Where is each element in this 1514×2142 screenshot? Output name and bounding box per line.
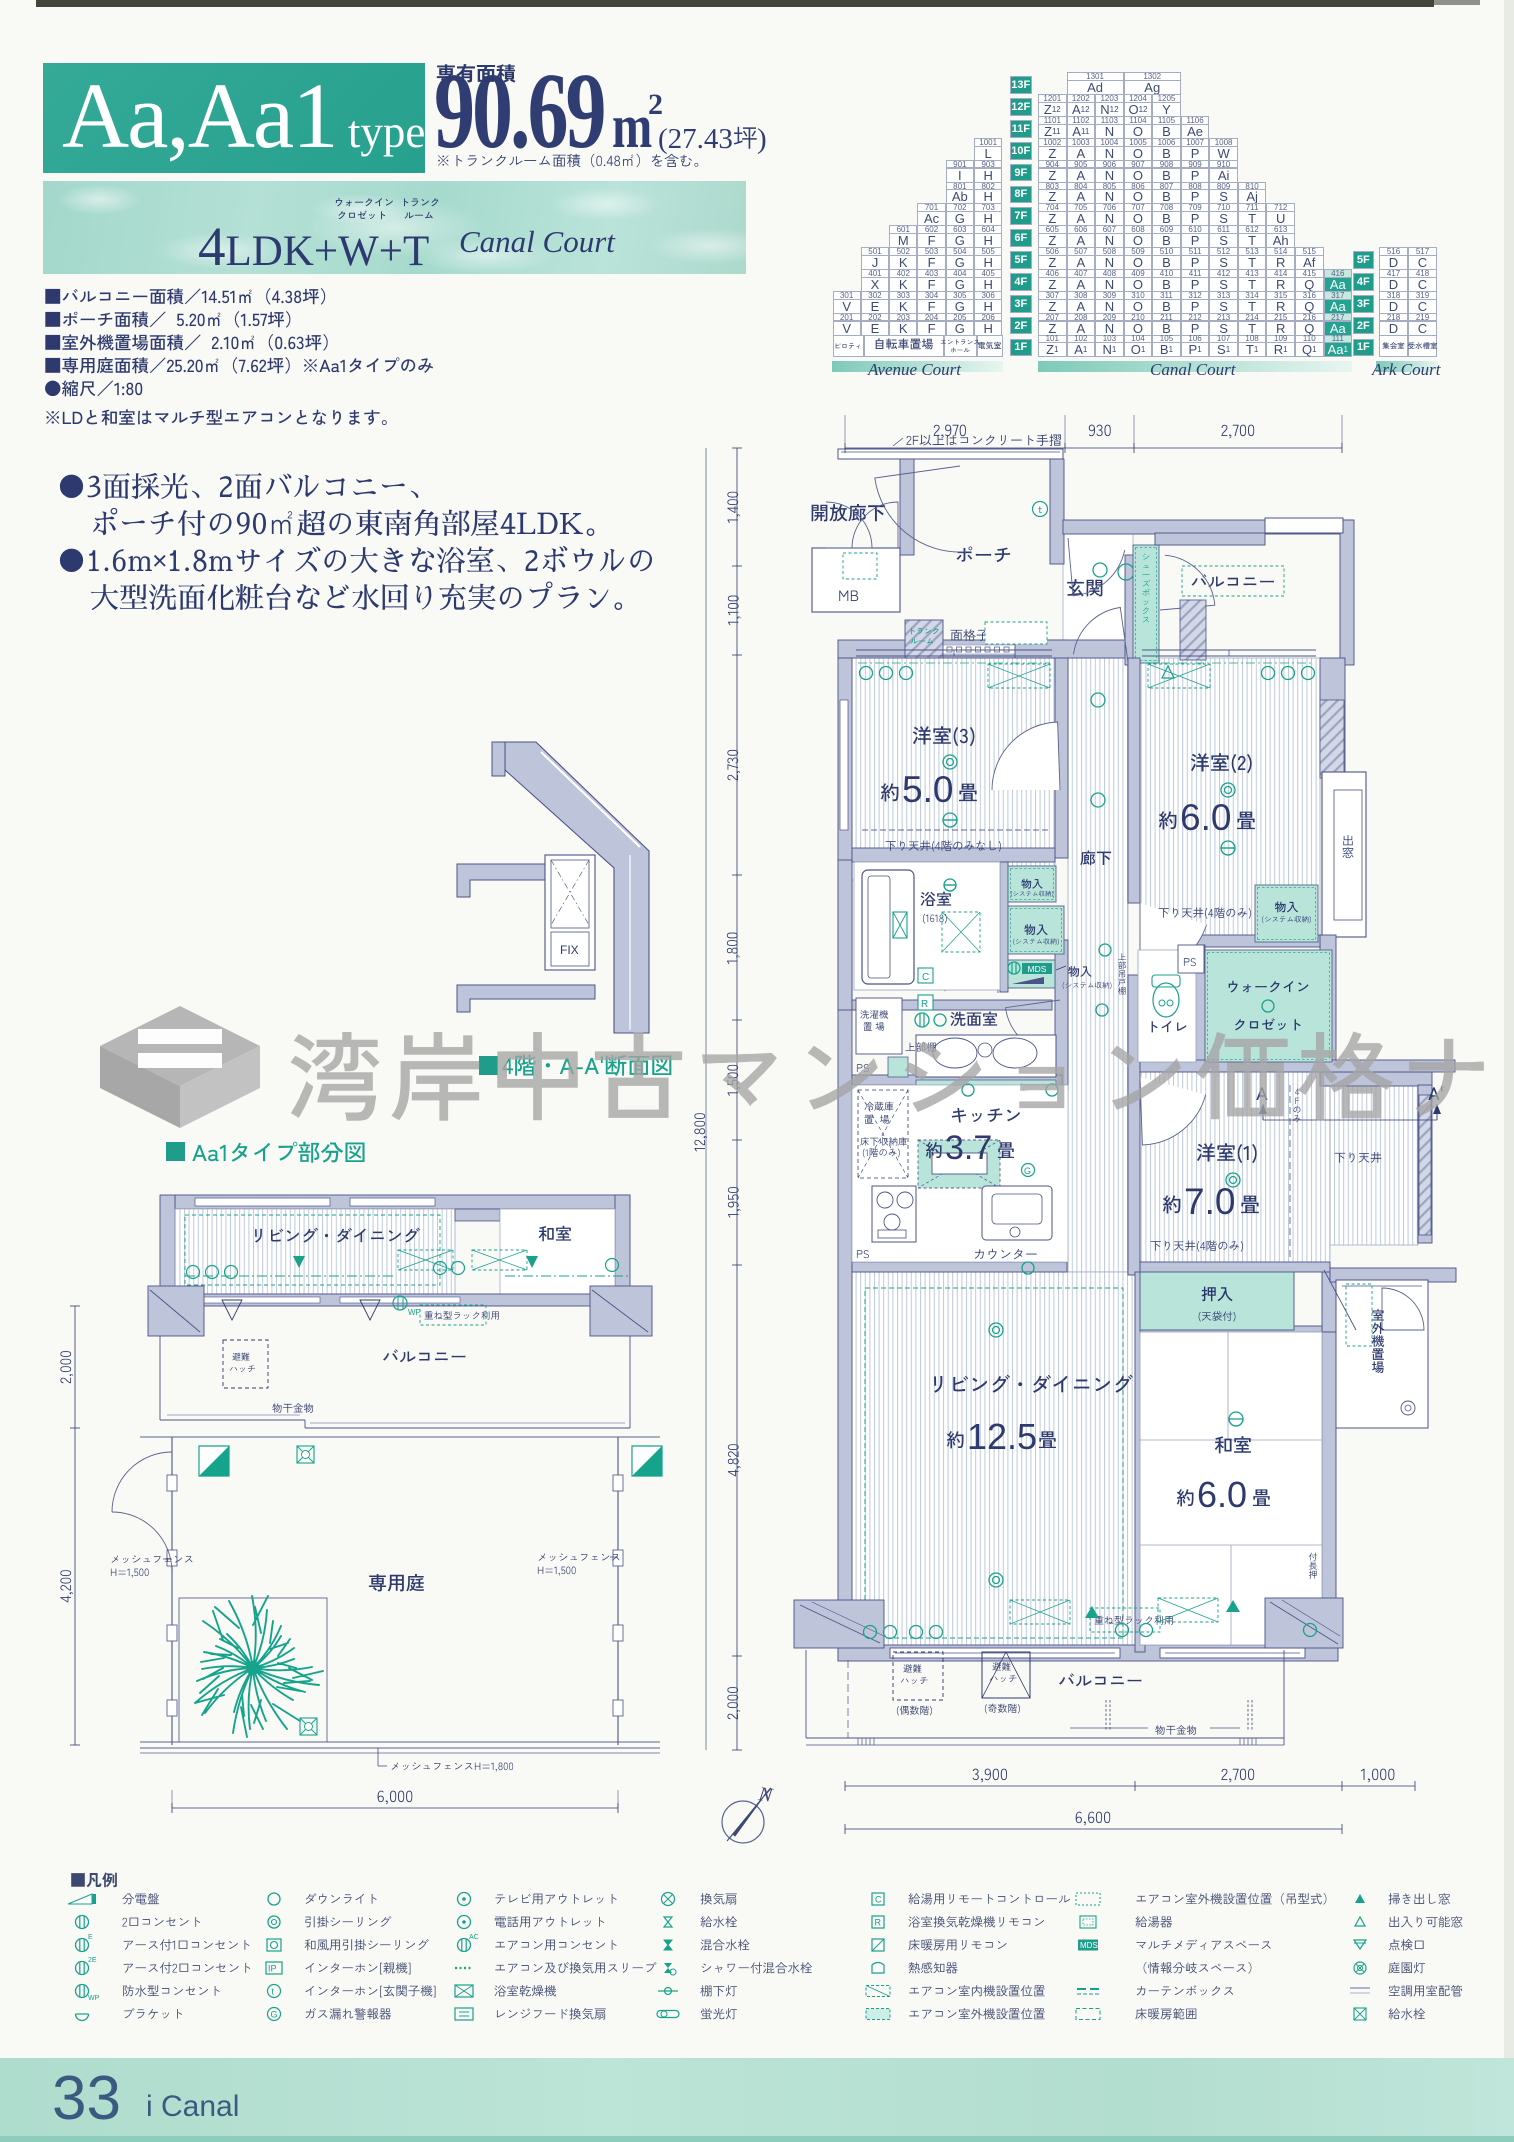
svg-text:MDS: MDS	[1080, 1941, 1098, 1950]
svg-text:FIX: FIX	[560, 943, 579, 957]
svg-text:G: G	[1024, 1166, 1031, 1176]
svg-text:E: E	[88, 1934, 93, 1941]
svg-text:WP: WP	[408, 1308, 421, 1317]
svg-text:12.5: 12.5	[967, 1416, 1037, 1457]
svg-text:G: G	[271, 2010, 278, 2020]
svg-text:IP: IP	[268, 1964, 277, 1974]
svg-text:6.0: 6.0	[1197, 1474, 1247, 1515]
svg-text:MDS: MDS	[1028, 964, 1047, 974]
svg-text:C: C	[922, 972, 929, 983]
svg-text:7.0: 7.0	[1184, 1181, 1235, 1222]
svg-text:AC: AC	[469, 1934, 479, 1941]
svg-text:t: t	[272, 1987, 275, 1997]
svg-text:3.7: 3.7	[945, 1129, 992, 1167]
svg-text:N: N	[756, 1783, 775, 1807]
svg-text:5.0: 5.0	[902, 769, 953, 810]
svg-text:R: R	[921, 999, 928, 1010]
svg-text:C: C	[875, 1895, 882, 1905]
svg-text:R: R	[875, 1918, 882, 1928]
svg-text:2E: 2E	[88, 1957, 97, 1964]
svg-text:6.0: 6.0	[1180, 797, 1231, 838]
svg-text:WP: WP	[88, 1995, 100, 2002]
